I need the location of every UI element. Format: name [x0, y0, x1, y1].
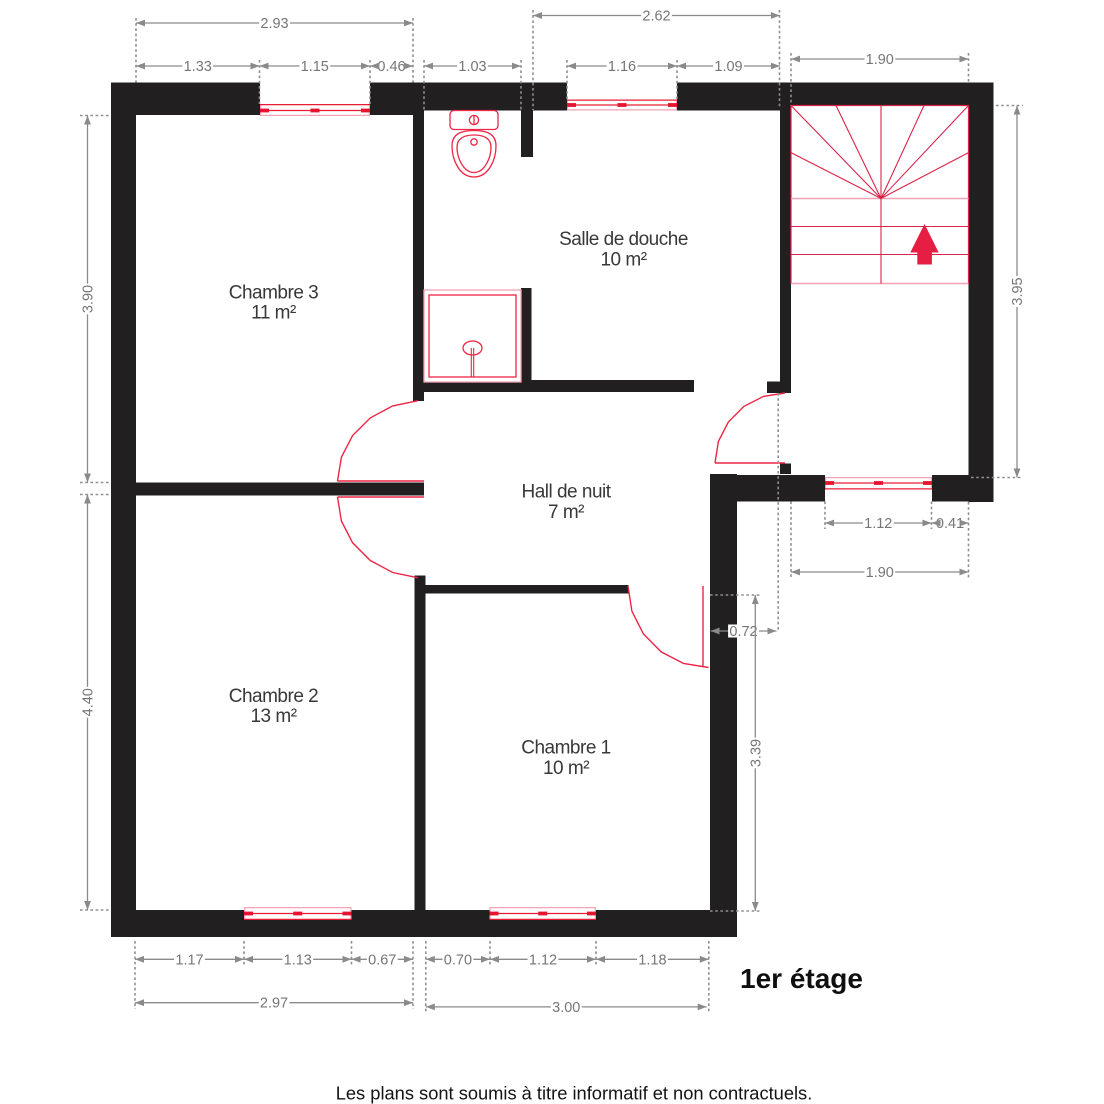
svg-text:2.93: 2.93 [260, 16, 288, 32]
svg-text:1.12: 1.12 [529, 952, 557, 968]
svg-text:4.40: 4.40 [81, 688, 97, 716]
svg-text:Chambre 3: Chambre 3 [229, 283, 319, 304]
svg-text:0.67: 0.67 [368, 952, 396, 968]
svg-text:7 m²: 7 m² [548, 502, 584, 523]
svg-text:10 m²: 10 m² [600, 250, 646, 271]
svg-text:0.70: 0.70 [444, 952, 472, 968]
svg-text:1.33: 1.33 [184, 59, 212, 75]
svg-text:1.15: 1.15 [301, 59, 329, 75]
svg-text:1.09: 1.09 [714, 59, 742, 75]
svg-text:1.03: 1.03 [458, 59, 486, 75]
svg-text:0.46: 0.46 [377, 59, 405, 75]
svg-text:Chambre 1: Chambre 1 [521, 738, 611, 759]
svg-text:Chambre 2: Chambre 2 [229, 686, 319, 707]
svg-text:3.95: 3.95 [1010, 277, 1026, 305]
svg-text:1.13: 1.13 [284, 952, 312, 968]
svg-text:Salle de douche: Salle de douche [559, 229, 688, 250]
svg-text:11 m²: 11 m² [251, 303, 296, 324]
svg-text:2.62: 2.62 [642, 9, 670, 25]
svg-text:3.39: 3.39 [748, 739, 764, 767]
svg-text:13 m²: 13 m² [250, 706, 296, 727]
svg-text:1.16: 1.16 [608, 59, 636, 75]
svg-text:1.90: 1.90 [866, 565, 894, 581]
svg-text:Les plans sont soumis à titre: Les plans sont soumis à titre informatif… [336, 1083, 813, 1104]
svg-text:Hall de nuit: Hall de nuit [521, 482, 611, 503]
svg-text:1.17: 1.17 [175, 952, 203, 968]
svg-text:3.90: 3.90 [81, 285, 97, 313]
svg-text:1.12: 1.12 [864, 516, 892, 532]
svg-text:10 m²: 10 m² [543, 758, 589, 779]
svg-text:2.97: 2.97 [260, 996, 288, 1012]
svg-text:1.18: 1.18 [638, 952, 666, 968]
svg-text:0.72: 0.72 [729, 624, 757, 640]
svg-text:3.00: 3.00 [552, 1000, 580, 1016]
svg-text:1.90: 1.90 [866, 52, 894, 68]
svg-text:1er étage: 1er étage [740, 963, 863, 994]
